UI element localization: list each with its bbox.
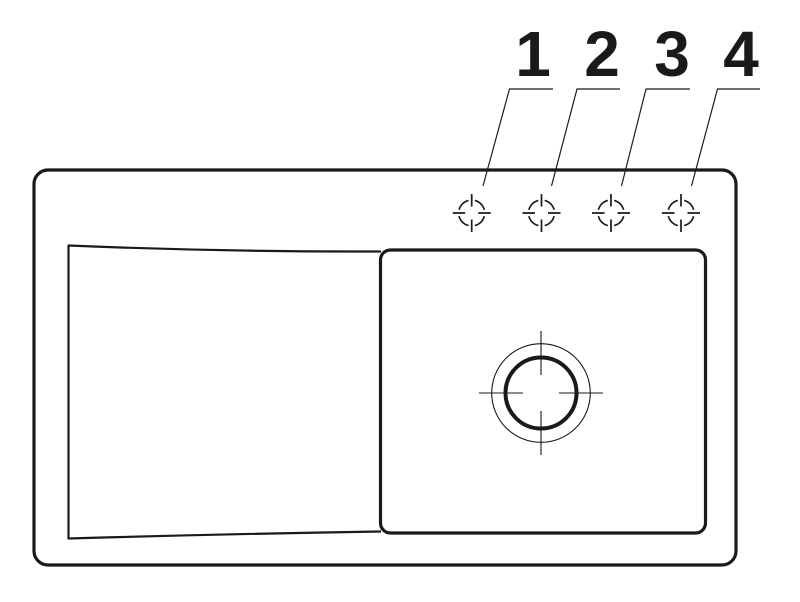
tap-hole-4 — [662, 194, 700, 232]
tap-hole-3-crosshair-ticks — [592, 194, 630, 232]
sink-technical-drawing: 1 2 3 4 — [0, 0, 800, 602]
tap-hole-1 — [453, 194, 491, 232]
drawing-line-work — [34, 89, 760, 565]
tap-hole-2 — [523, 194, 561, 232]
tap-hole-label-3: 3 — [654, 18, 690, 90]
drain-centerline-crosshair — [479, 331, 603, 455]
drainboard-outline — [69, 246, 382, 539]
tap-hole-labels: 1 2 3 4 — [515, 18, 759, 90]
tap-hole-label-2: 2 — [584, 18, 620, 90]
tap-hole-1-crosshair-ticks — [453, 194, 491, 232]
tap-hole-4-crosshair-ticks — [662, 194, 700, 232]
tap-hole-label-4: 4 — [723, 18, 759, 90]
tap-hole-label-1: 1 — [515, 18, 551, 90]
bowl-outline — [381, 250, 706, 533]
tap-hole-2-crosshair-ticks — [523, 194, 561, 232]
sink-body-outline — [34, 170, 736, 565]
tap-hole-3 — [592, 194, 630, 232]
sink-drawing-page: 1 2 3 4 — [0, 0, 800, 602]
